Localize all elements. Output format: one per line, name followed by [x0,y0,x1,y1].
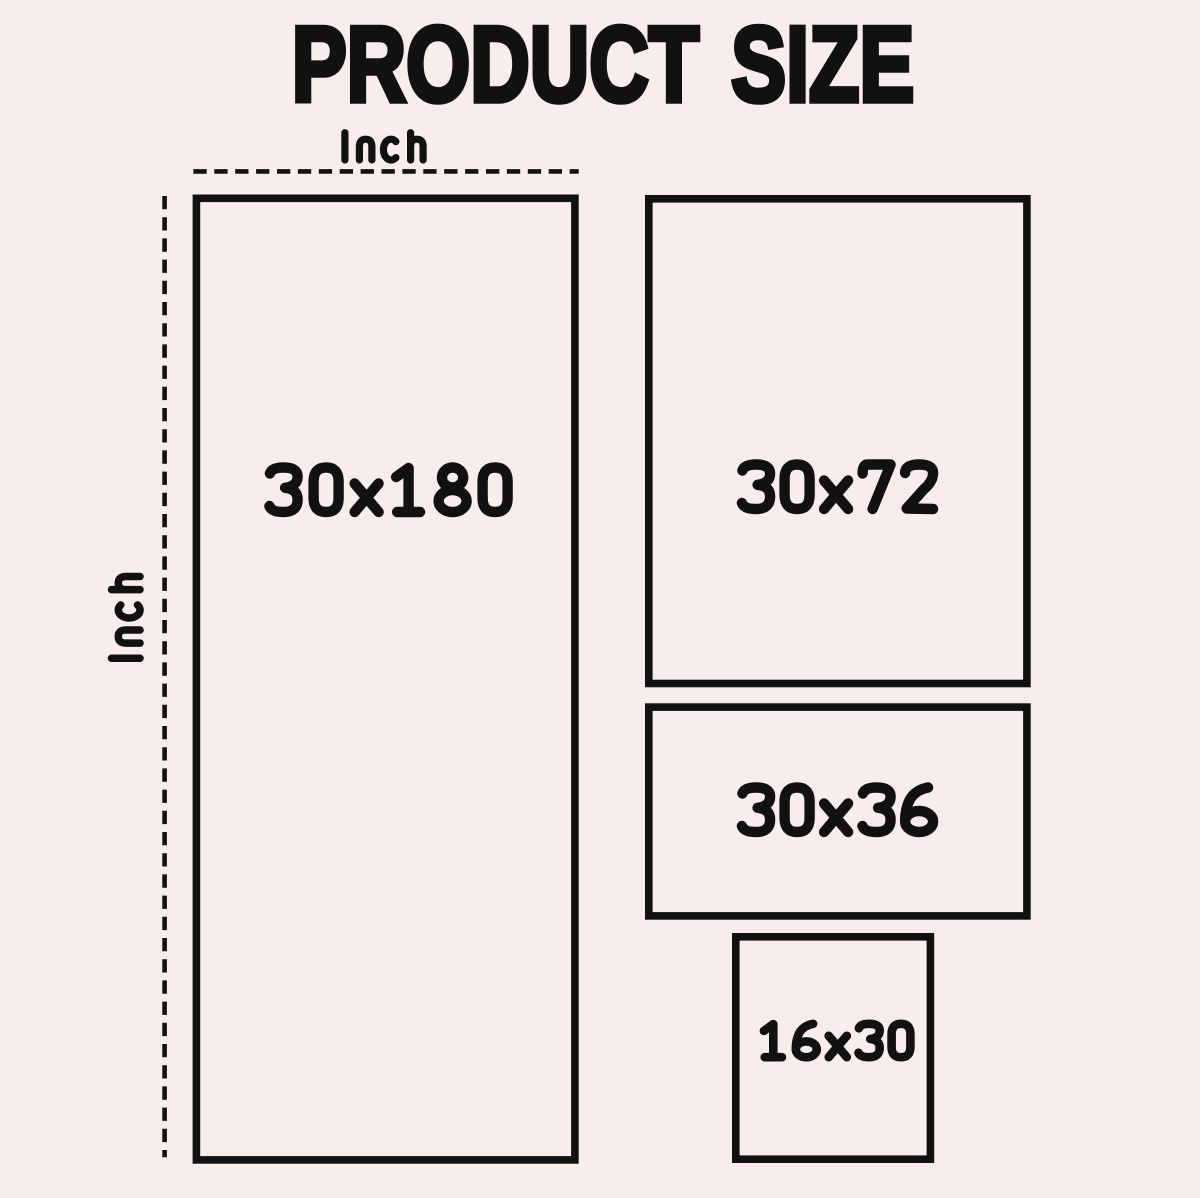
svg-text:PRODUCT SIZE: PRODUCT SIZE [292,6,915,125]
